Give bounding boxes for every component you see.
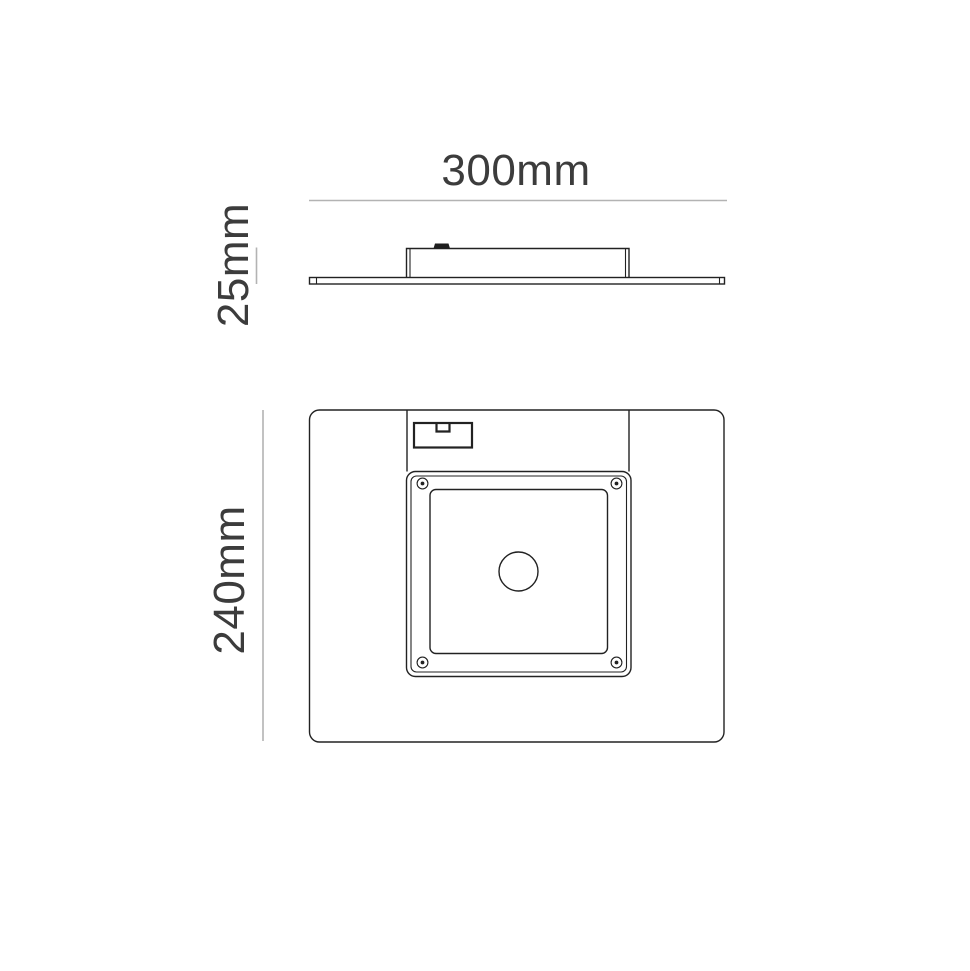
screw-center-icon [615,482,619,486]
connector-block [414,423,472,448]
mounting-plate-outer [407,472,632,677]
screw-center-icon [615,661,619,665]
technical-drawing-canvas: 300mm 25mm 240mm [0,0,970,971]
dimension-drawing: 300mm 25mm 240mm [0,0,970,971]
width-dimension-label: 300mm [441,146,590,195]
back-view: 240mm [205,410,724,742]
body-height-dimension-label: 240mm [205,505,254,654]
screw-center-icon [421,482,425,486]
panel-profile [310,278,725,285]
profile-height-dimension-label: 25mm [209,203,258,327]
mounting-clip-tab [434,244,451,249]
driver-housing-profile [407,249,630,278]
side-view: 300mm 25mm [209,146,727,327]
screw-center-icon [421,661,425,665]
